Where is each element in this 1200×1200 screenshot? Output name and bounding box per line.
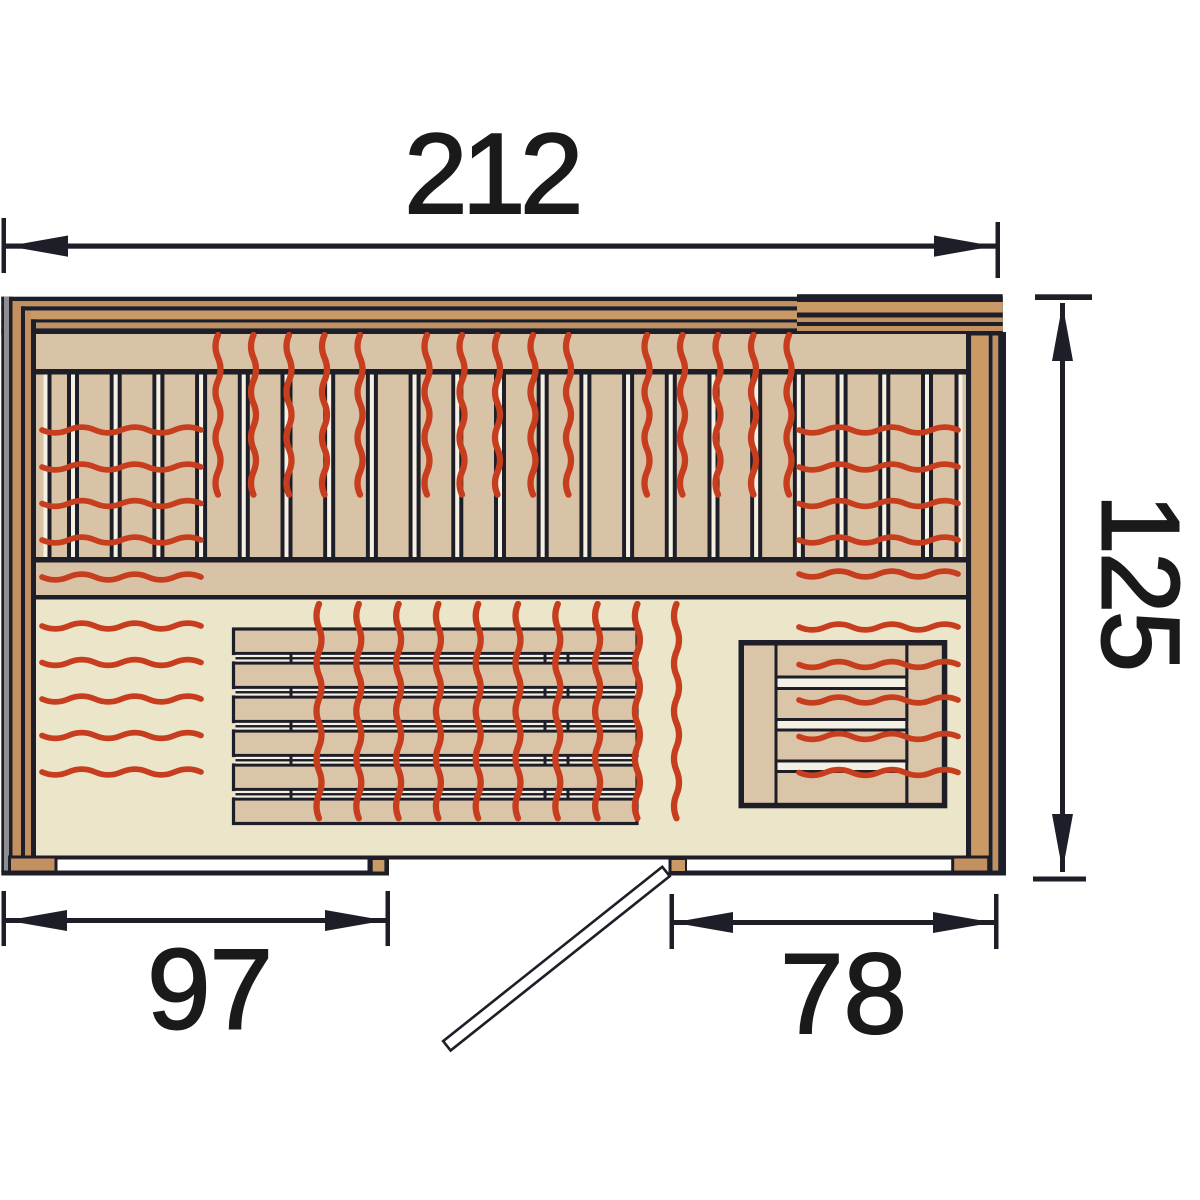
svg-text:78: 78: [780, 931, 907, 1058]
svg-text:125: 125: [1079, 493, 1200, 669]
svg-text:212: 212: [404, 111, 578, 238]
svg-text:97: 97: [147, 927, 272, 1054]
